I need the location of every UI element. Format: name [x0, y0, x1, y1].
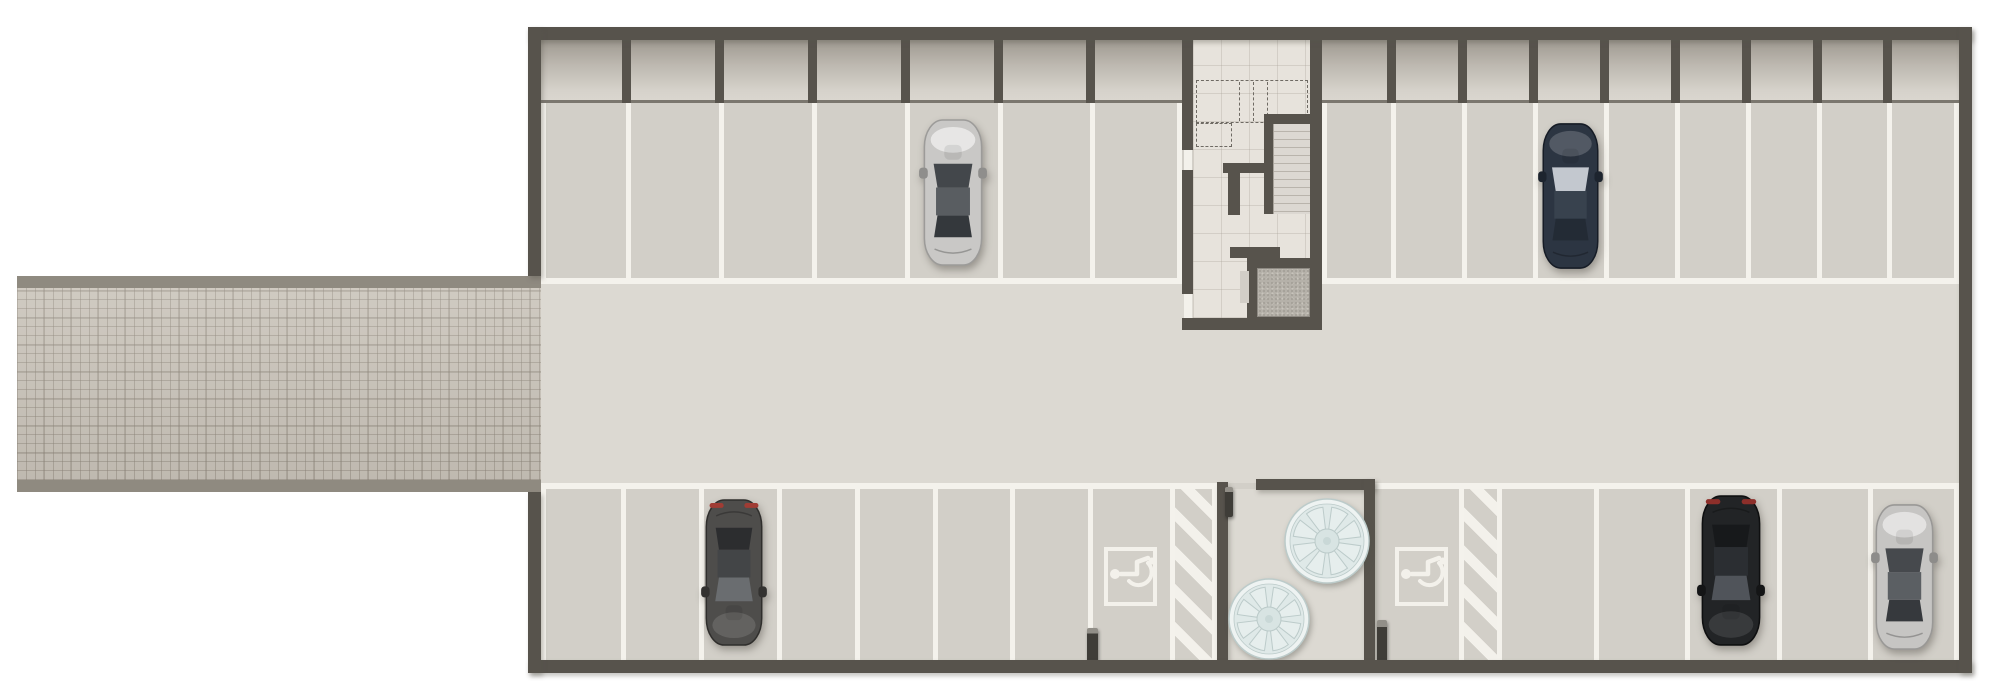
stall-line-top-right: [1817, 103, 1822, 284]
elevator-door: [1240, 271, 1249, 303]
ramp-curb-bottom: [17, 480, 541, 492]
stall-line-top-right: [1675, 103, 1680, 284]
bollard-right: [1377, 620, 1387, 663]
storage-cell-divider: [901, 40, 910, 103]
wheelchair-icon: [1402, 550, 1442, 603]
stall-line-top-right: [1604, 103, 1609, 284]
core-wall-right: [1310, 40, 1322, 318]
overhead-dashed-line: [1239, 82, 1240, 121]
storage-cell-divider: [1742, 40, 1751, 103]
stall-line-bottom-right: [1497, 489, 1502, 660]
wall-bottom: [528, 660, 1972, 673]
stall-line-bottom-left: [541, 489, 546, 660]
car-black-bottom: [1699, 494, 1763, 647]
alcove-wall-top: [1256, 479, 1375, 490]
stall-line-bottom-left: [777, 489, 782, 660]
stall-line-top-right: [1391, 103, 1396, 284]
stall-line-bottom-right: [1594, 489, 1599, 660]
stair-flight: [1273, 124, 1311, 214]
entrance-ramp: [17, 288, 541, 480]
elevator-cab-floor: [1257, 268, 1310, 317]
wall-left-lower: [528, 492, 541, 673]
overhead-dashed-line: [1253, 82, 1254, 121]
no-parking-hatch-right: [1464, 489, 1497, 660]
car-silver-top: [921, 118, 985, 267]
storage-cell-divider: [994, 40, 1003, 103]
stall-line-top-left: [812, 103, 817, 284]
accessible-parking-symbol-right: [1395, 547, 1448, 606]
storage-cell-divider: [715, 40, 724, 103]
storage-cell-divider: [808, 40, 817, 103]
car-silver-bottom: [1873, 503, 1936, 651]
no-parking-hatch-left: [1175, 489, 1212, 660]
overhead-dashed-outline-small: [1196, 123, 1232, 147]
storage-cell-divider: [1813, 40, 1822, 103]
storage-cell-divider: [1387, 40, 1396, 103]
car-gray-bottom: [703, 498, 765, 647]
wheelchair-icon: [1111, 550, 1151, 603]
ramp-curb-top: [17, 276, 541, 288]
bollard-left: [1087, 628, 1098, 662]
stall-line-top-left: [541, 103, 546, 284]
stall-line-top-left: [905, 103, 910, 284]
wall-right: [1959, 27, 1972, 673]
stair-top-wall: [1264, 114, 1310, 124]
stall-line-top-left: [626, 103, 631, 284]
landing-wall-h: [1223, 163, 1267, 173]
stall-line-bottom-left: [933, 489, 938, 660]
storage-cell-divider: [1458, 40, 1467, 103]
stall-line-top-right: [1887, 103, 1892, 284]
stall-line-bottom-left: [855, 489, 860, 660]
landing-wall-v: [1228, 173, 1240, 215]
wall-left-upper: [528, 27, 541, 276]
stall-line-bottom-right: [1685, 489, 1690, 660]
core-wall-bottom: [1182, 318, 1322, 330]
accessible-parking-symbol-left: [1104, 547, 1157, 606]
storage-cell-divider: [622, 40, 631, 103]
storage-cells-right: [1322, 40, 1959, 100]
core-wall-left-mid: [1182, 170, 1193, 294]
car-navy-top: [1540, 122, 1601, 270]
storage-cell-divider: [1600, 40, 1609, 103]
stall-line-top-right: [1746, 103, 1751, 284]
storage-cell-divider: [1086, 40, 1095, 103]
storage-cell-divider: [1671, 40, 1680, 103]
stall-line-top-right: [1462, 103, 1467, 284]
stall-line-top-right: [1322, 103, 1327, 284]
stall-line-bottom-right: [1777, 489, 1782, 660]
stall-line-top-left: [719, 103, 724, 284]
stall-line-top-right: [1533, 103, 1538, 284]
door-leaf: [1184, 294, 1192, 318]
storage-cell-divider: [1883, 40, 1892, 103]
bollard-alcove-entry: [1225, 487, 1233, 517]
core-wall-left-upper: [1182, 40, 1193, 150]
ventilation-fan-small: [1222, 572, 1316, 666]
wall-top: [528, 27, 1972, 40]
stall-line-top-left: [998, 103, 1003, 284]
parking-garage-floor-plan: [0, 0, 2000, 700]
stall-line-top-left: [1090, 103, 1095, 284]
core-stub-wall: [1230, 247, 1280, 258]
storage-cells-edge-right: [1322, 100, 1959, 103]
stall-front-line-bottom-left: [541, 483, 1217, 489]
stall-line-bottom-left: [1010, 489, 1015, 660]
stall-front-line-top-right: [1322, 278, 1959, 284]
stall-line-bottom-left: [621, 489, 626, 660]
stall-front-line-top-left: [541, 278, 1182, 284]
storage-cell-divider: [1529, 40, 1538, 103]
door-leaf: [1184, 150, 1192, 170]
